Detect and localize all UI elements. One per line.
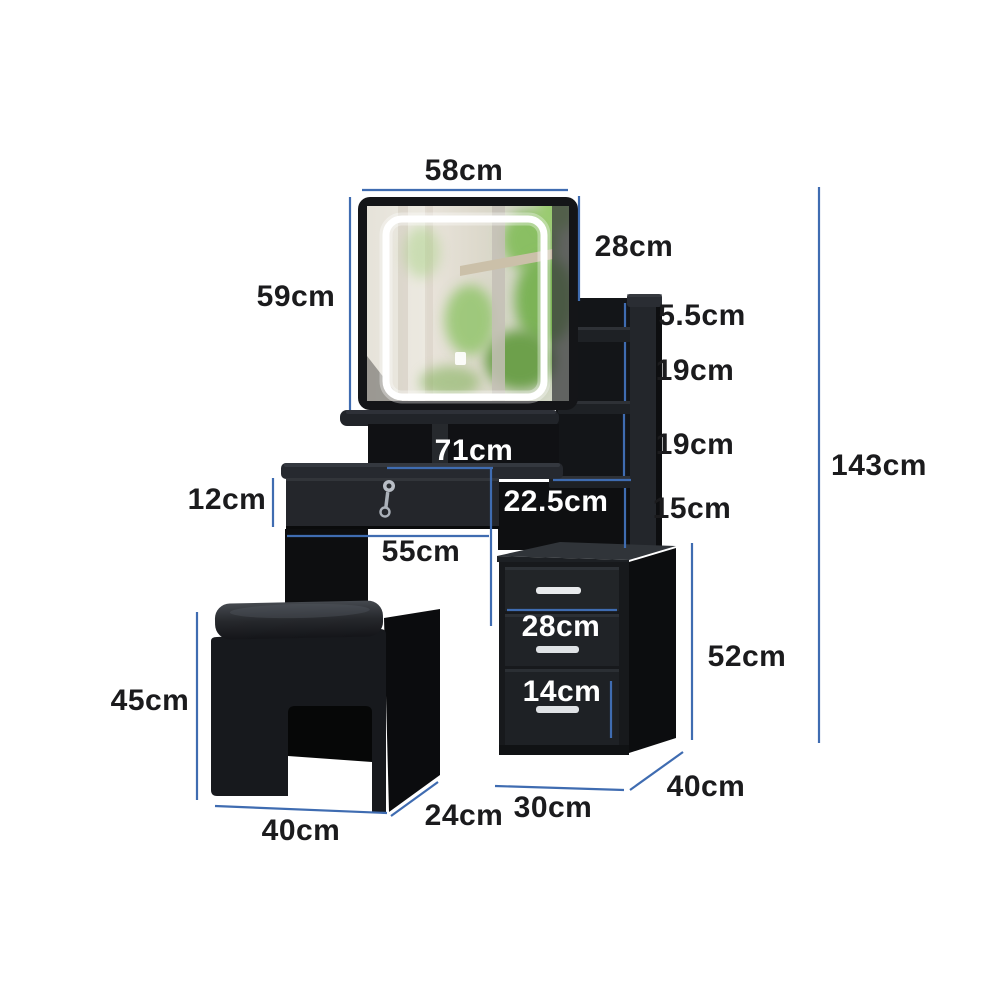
- dim-label-mirror-height: 59cm: [257, 282, 336, 312]
- dim-label-knee-space-width: 55cm: [382, 537, 461, 567]
- dim-label-cabinet-height: 52cm: [708, 642, 787, 672]
- dim-label-mirror-width: 58cm: [425, 156, 504, 186]
- dim-label-stool-width: 40cm: [262, 816, 341, 846]
- dim-label-shelf-gap-lower: 19cm: [656, 430, 735, 460]
- dim-label-mirror-to-shelf: 28cm: [595, 232, 674, 262]
- dim-label-desk-drawer-height: 12cm: [188, 485, 267, 515]
- drawer-handle: [536, 587, 581, 594]
- drawer-handle: [536, 646, 579, 653]
- dim-line-stool-width: [215, 806, 387, 813]
- stool-cushion: [215, 600, 384, 640]
- dim-label-cabinet-drawer-width: 28cm: [522, 612, 601, 642]
- vanity-set-illustration: [0, 0, 1000, 1000]
- dim-label-desktop-width: 71cm: [435, 436, 514, 466]
- dim-label-cabinet-width: 30cm: [514, 793, 593, 823]
- dim-label-bottom-shelf-gap: 15cm: [653, 494, 732, 524]
- led-mirror: [358, 192, 578, 410]
- dim-label-cabinet-drawer-height: 14cm: [523, 677, 602, 707]
- diagram-canvas: 58cm 28cm 59cm 5.5cm 19cm 19cm 143cm 71c…: [0, 0, 1000, 1000]
- dim-line-cabinet-width: [495, 786, 624, 790]
- dim-label-total-height: 143cm: [831, 451, 927, 481]
- dim-label-stool-depth: 24cm: [425, 801, 504, 831]
- touch-switch-icon: [455, 352, 466, 365]
- dim-label-stool-height: 45cm: [111, 686, 190, 716]
- dim-label-top-shelf-gap: 5.5cm: [658, 301, 746, 331]
- stool: [211, 600, 440, 812]
- dim-label-shelf-inner-width: 22.5cm: [504, 487, 609, 517]
- drawer-cabinet: [497, 542, 676, 755]
- dim-label-cabinet-depth: 40cm: [667, 772, 746, 802]
- dim-label-shelf-gap-upper: 19cm: [656, 356, 735, 386]
